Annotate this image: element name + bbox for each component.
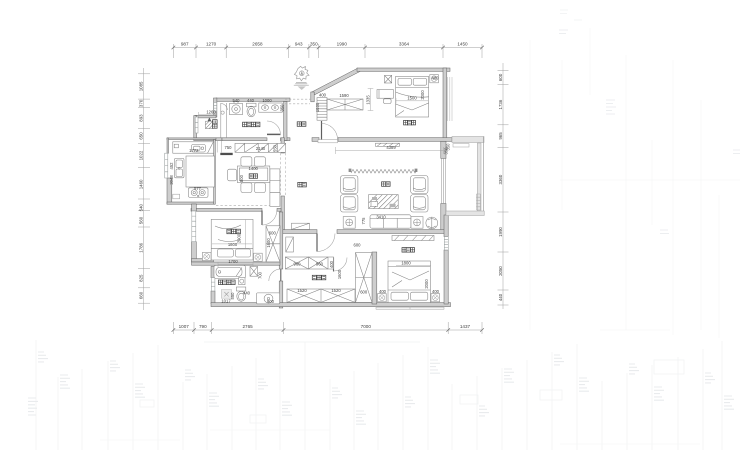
svg-text:440: 440 — [243, 291, 251, 296]
svg-text:1460: 1460 — [139, 179, 144, 189]
svg-text:2000: 2000 — [420, 90, 425, 100]
svg-text:560: 560 — [139, 216, 144, 224]
svg-text:400: 400 — [379, 289, 387, 294]
svg-text:1450: 1450 — [457, 42, 468, 47]
svg-text:660: 660 — [139, 291, 144, 299]
svg-text:1700: 1700 — [228, 259, 238, 264]
svg-text:3410: 3410 — [376, 214, 386, 219]
svg-text:2048: 2048 — [169, 175, 174, 185]
svg-text:1260: 1260 — [206, 109, 216, 114]
svg-text:1990: 1990 — [498, 227, 503, 237]
svg-text:965: 965 — [498, 132, 503, 140]
svg-text:1990: 1990 — [337, 42, 348, 47]
svg-text:600: 600 — [498, 73, 503, 81]
svg-text:400: 400 — [432, 289, 440, 294]
svg-text:600: 600 — [354, 243, 362, 248]
svg-text:960: 960 — [316, 262, 324, 267]
svg-text:1786: 1786 — [139, 242, 144, 252]
svg-text:1030: 1030 — [315, 102, 320, 112]
svg-text:900: 900 — [267, 299, 275, 304]
svg-text:350: 350 — [310, 42, 318, 47]
svg-text:350: 350 — [280, 104, 285, 112]
svg-text:1007: 1007 — [179, 324, 190, 329]
svg-text:400: 400 — [432, 76, 440, 81]
svg-text:2765: 2765 — [242, 324, 253, 329]
svg-text:540: 540 — [139, 203, 144, 211]
svg-text:1400: 1400 — [249, 166, 259, 171]
svg-text:550: 550 — [272, 144, 277, 152]
svg-text:943: 943 — [295, 42, 303, 47]
svg-text:1600: 1600 — [266, 238, 271, 248]
svg-text:600: 600 — [269, 231, 277, 236]
svg-text:1520: 1520 — [297, 288, 307, 293]
svg-text:577: 577 — [194, 186, 202, 191]
svg-text:893: 893 — [139, 114, 144, 122]
svg-text:370: 370 — [139, 99, 144, 107]
svg-text:1437: 1437 — [460, 324, 471, 329]
svg-text:440: 440 — [498, 293, 503, 301]
svg-text:600: 600 — [360, 290, 368, 295]
svg-text:1000: 1000 — [262, 98, 272, 103]
svg-text:350: 350 — [444, 147, 449, 155]
svg-text:1335: 1335 — [366, 95, 371, 105]
svg-text:1600: 1600 — [337, 269, 342, 279]
svg-text:1800: 1800 — [401, 261, 411, 266]
svg-text:800: 800 — [239, 174, 244, 182]
svg-text:790: 790 — [199, 324, 207, 329]
svg-text:1736: 1736 — [498, 99, 503, 109]
svg-text:825: 825 — [139, 274, 144, 282]
svg-text:550: 550 — [230, 292, 235, 300]
svg-text:1022: 1022 — [139, 150, 144, 160]
svg-text:2140: 2140 — [256, 146, 266, 151]
svg-text:2050: 2050 — [498, 266, 503, 276]
svg-text:2000: 2000 — [424, 279, 429, 289]
svg-text:7000: 7000 — [361, 324, 372, 329]
svg-text:1520: 1520 — [331, 288, 341, 293]
svg-text:1772: 1772 — [189, 148, 199, 153]
svg-text:1017: 1017 — [221, 298, 231, 303]
svg-text:2000: 2000 — [236, 233, 241, 243]
svg-text:750: 750 — [225, 145, 233, 150]
svg-text:400: 400 — [329, 260, 334, 268]
svg-text:400: 400 — [319, 93, 327, 98]
svg-text:650: 650 — [139, 132, 144, 140]
svg-text:1085: 1085 — [139, 81, 144, 91]
svg-text:700: 700 — [258, 271, 263, 279]
svg-text:2658: 2658 — [252, 42, 263, 47]
svg-text:3360: 3360 — [498, 174, 503, 184]
svg-text:1500: 1500 — [407, 96, 417, 101]
svg-text:440: 440 — [247, 98, 255, 103]
svg-text:960: 960 — [294, 262, 302, 267]
svg-text:1270: 1270 — [206, 42, 217, 47]
svg-text:4389: 4389 — [386, 145, 396, 150]
svg-text:3364: 3364 — [399, 42, 410, 47]
svg-text:540: 540 — [233, 98, 241, 103]
svg-text:452: 452 — [169, 162, 174, 170]
svg-text:775: 775 — [361, 217, 366, 225]
svg-text:987: 987 — [181, 42, 189, 47]
svg-text:1590: 1590 — [339, 93, 349, 98]
